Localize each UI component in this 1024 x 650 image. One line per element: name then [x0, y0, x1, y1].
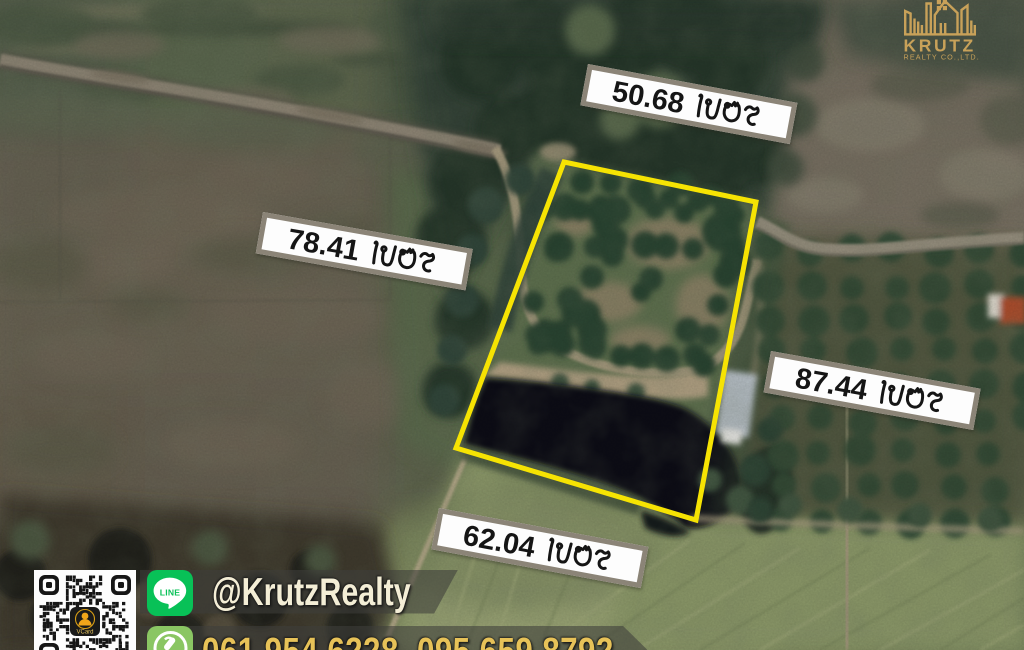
svg-text:REALTY CO.,LTD.: REALTY CO.,LTD.: [904, 53, 980, 62]
svg-text:LINE: LINE: [160, 588, 180, 598]
svg-text:VCard: VCard: [76, 630, 93, 636]
